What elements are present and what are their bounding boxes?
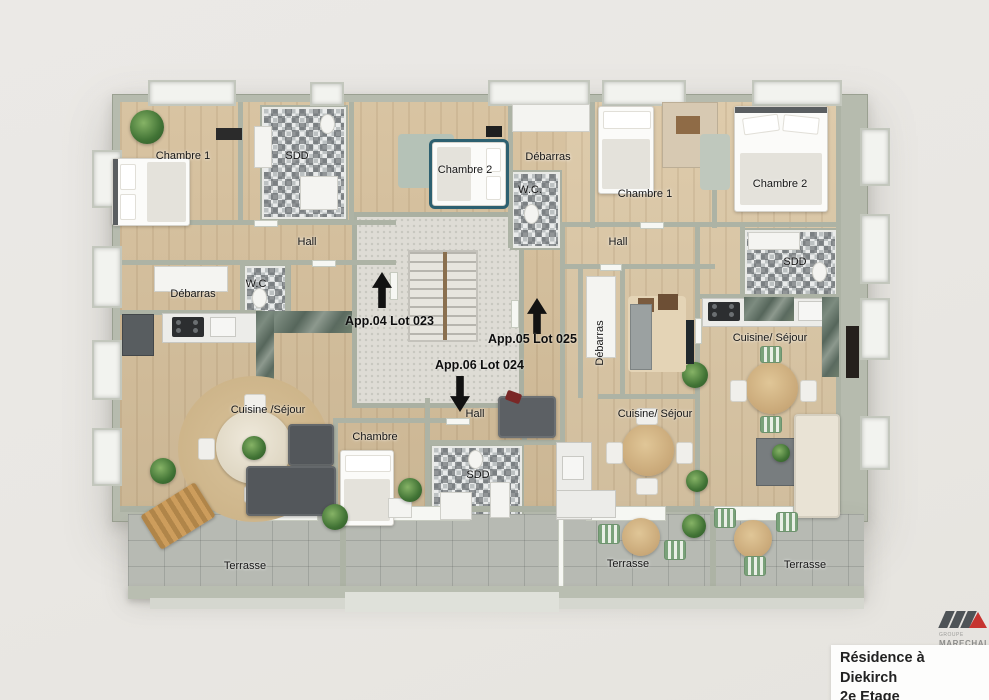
plant (130, 110, 164, 144)
chair (598, 524, 620, 544)
rug (700, 134, 730, 190)
staircase (408, 250, 478, 342)
room-label-wc-n: W.C. (518, 184, 542, 196)
chair (676, 442, 693, 464)
dresser (216, 128, 242, 140)
chair (198, 438, 215, 460)
chair (606, 442, 623, 464)
tv-panel (686, 320, 694, 364)
wall (238, 102, 243, 225)
logo-group-text: GROUPE (939, 632, 964, 638)
room-label-chambre2-n: Chambre 2 (438, 164, 492, 176)
toilet (320, 114, 335, 134)
door (695, 318, 702, 344)
wall (565, 222, 838, 227)
chair (800, 380, 817, 402)
room-label-terrasse-s: Terrasse (607, 558, 649, 570)
room-label-hall-w: Hall (298, 236, 317, 248)
chair (776, 512, 798, 532)
room-label-chambre1-ne: Chambre 1 (618, 188, 672, 200)
terrace-table (622, 518, 660, 556)
apartment-05-label: App.05 Lot 025 (488, 332, 577, 346)
window-bay (752, 80, 842, 106)
chair (664, 540, 686, 560)
bed-single (598, 106, 654, 194)
chair (760, 346, 782, 363)
kitchen-sink (562, 456, 584, 480)
plant (772, 444, 790, 462)
window-bay (310, 82, 344, 106)
wall (578, 268, 583, 398)
window-bay (92, 246, 122, 308)
wardrobe (512, 104, 590, 132)
plant (150, 458, 176, 484)
toilet (252, 288, 267, 308)
kitchen-counter-marble (744, 297, 794, 321)
bathroom-vanity (748, 232, 800, 250)
terrace-divider-glass (558, 514, 564, 590)
chair (744, 556, 766, 576)
tv-unit (486, 126, 502, 137)
room-label-cuisine-s: Cuisine/ Séjour (618, 408, 693, 420)
wall (565, 264, 715, 269)
kitchen-sink (210, 317, 236, 337)
window-bay (92, 428, 122, 486)
plant (682, 514, 706, 538)
apartment-04-label: App.04 Lot 023 (345, 314, 434, 328)
bed-double (734, 106, 828, 212)
sofa (498, 396, 556, 438)
chair (730, 380, 747, 402)
sofa (794, 414, 840, 518)
room-label-chambre1-nw: Chambre 1 (156, 150, 210, 162)
bed-double (112, 158, 190, 226)
tall-marble-unit (822, 297, 839, 377)
room-label-chambre-s: Chambre (352, 431, 397, 443)
sofa (246, 466, 336, 516)
room-label-debarras-w: Débarras (170, 288, 215, 300)
bathroom-vanity (490, 482, 510, 518)
window-bay (860, 298, 890, 360)
door (312, 260, 336, 267)
window-bay (148, 80, 236, 106)
wall (120, 260, 396, 265)
window-bay (860, 416, 890, 470)
wall (620, 268, 625, 398)
room-label-terrasse-w: Terrasse (224, 560, 266, 572)
plan-title-box: Résidence à Diekirch 2e Etage (831, 645, 989, 700)
plant (398, 478, 422, 502)
entrance-slab (345, 592, 559, 612)
window-bay (860, 214, 890, 284)
plant (242, 436, 266, 460)
room-label-hall-e: Hall (609, 236, 628, 248)
fridge (122, 314, 154, 356)
bathroom-cabinet (254, 126, 272, 168)
toilet (524, 204, 539, 224)
room-label-debarras-mid: Débarras (594, 320, 606, 365)
room-label-cuisine-w: Cuisine /Séjour (231, 404, 306, 416)
window-bay (860, 128, 890, 186)
kitchen-island-marble (256, 311, 274, 385)
room-label-terrasse-e: Terrasse (784, 559, 826, 571)
kitchen-counter (556, 490, 616, 518)
storage-box (676, 116, 700, 134)
window-bay (92, 340, 122, 400)
pouf (658, 294, 678, 310)
window-bay (488, 80, 590, 106)
tv-panel (846, 326, 859, 378)
wall (336, 418, 460, 423)
room-label-chambre2-ne: Chambre 2 (753, 178, 807, 190)
door (600, 264, 622, 271)
wall (425, 398, 430, 514)
wall (428, 440, 560, 445)
bookshelf (630, 304, 652, 370)
room-label-sdd-s: SDD (466, 469, 489, 481)
sofa (288, 424, 334, 466)
wall (740, 226, 745, 298)
room-label-sdd-nw: SDD (285, 150, 308, 162)
room-label-hall-s: Hall (466, 408, 485, 420)
wall (598, 394, 698, 399)
room-label-debarras-n: Débarras (525, 151, 570, 163)
door (640, 222, 664, 229)
door (254, 220, 278, 227)
wall (349, 102, 354, 220)
plant (322, 504, 348, 530)
chair (636, 478, 658, 495)
terrace-table (734, 520, 772, 558)
door (511, 300, 519, 328)
shower-tray (440, 492, 472, 520)
plan-title-line2: 2e Etage (840, 688, 982, 700)
plant (686, 470, 708, 492)
chair (760, 416, 782, 433)
dining-table (622, 424, 674, 476)
chair (714, 508, 736, 528)
wall (590, 102, 595, 228)
dining-table (746, 362, 798, 414)
room-label-wc-w: W.C (246, 278, 267, 290)
cooktop (172, 317, 204, 337)
cooktop (708, 302, 740, 321)
plan-title-line1: Résidence à Diekirch (840, 649, 982, 688)
room-label-sdd-e: SDD (783, 256, 806, 268)
shower-tray (300, 176, 338, 210)
floorplan-scene: Chambre 1 SDD Chambre 2 Débarras W.C. Ch… (0, 0, 989, 700)
apartment-06-label: App.06 Lot 024 (435, 358, 524, 372)
bed-single (340, 450, 394, 526)
toilet (468, 450, 483, 469)
door (390, 272, 398, 300)
room-label-cuisine-e: Cuisine/ Séjour (733, 332, 808, 344)
toilet (812, 262, 827, 282)
